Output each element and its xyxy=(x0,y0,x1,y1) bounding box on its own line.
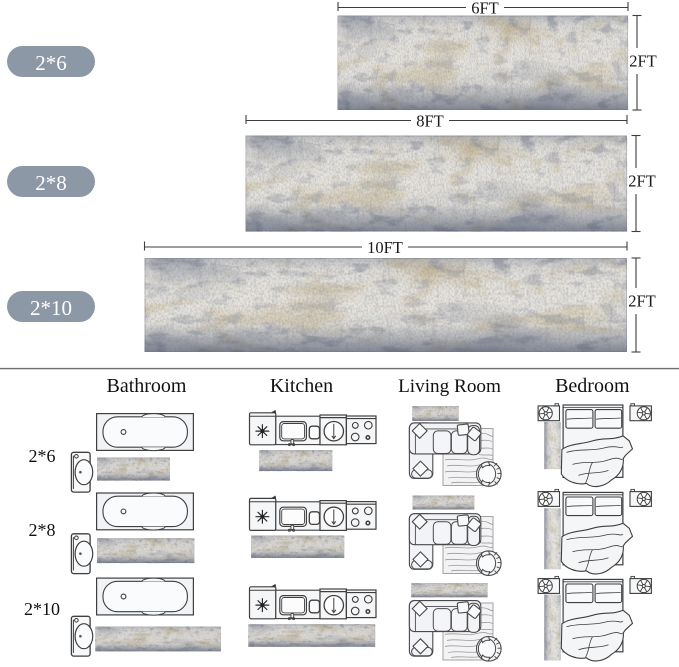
svg-text:Living Room: Living Room xyxy=(398,376,501,397)
svg-text:2*10: 2*10 xyxy=(30,296,72,320)
svg-text:10FT: 10FT xyxy=(367,238,403,257)
svg-text:6FT: 6FT xyxy=(471,0,499,18)
svg-text:Kitchen: Kitchen xyxy=(270,375,333,397)
svg-text:2*6: 2*6 xyxy=(35,51,67,75)
svg-text:8FT: 8FT xyxy=(416,112,444,131)
svg-text:Bedroom: Bedroom xyxy=(555,375,630,397)
svg-text:2FT: 2FT xyxy=(628,172,656,191)
svg-text:2*8: 2*8 xyxy=(35,171,67,195)
svg-text:2*8: 2*8 xyxy=(29,520,56,540)
svg-text:2FT: 2FT xyxy=(629,52,657,71)
svg-text:2*6: 2*6 xyxy=(29,446,56,466)
svg-text:2FT: 2FT xyxy=(628,292,656,311)
svg-text:2*10: 2*10 xyxy=(24,599,60,619)
svg-text:Bathroom: Bathroom xyxy=(107,375,187,397)
